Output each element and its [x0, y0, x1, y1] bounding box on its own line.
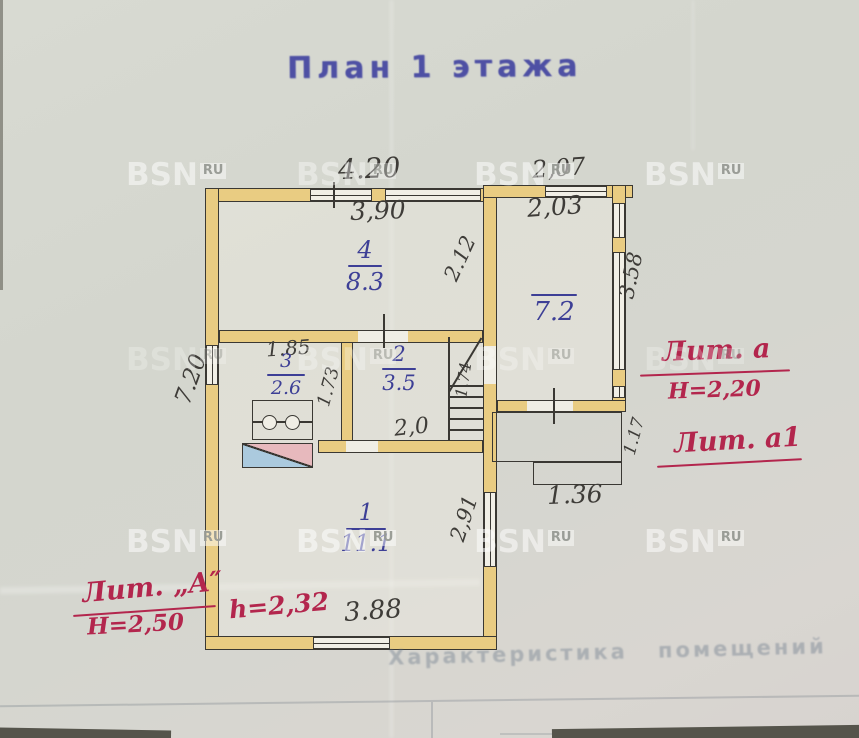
porch-step-1	[492, 412, 622, 462]
watermark: BSNRU	[644, 345, 744, 376]
annotation-liter-porch: Лит. а1	[673, 424, 801, 458]
stove-burner	[285, 415, 300, 430]
watermark: BSNRU	[296, 160, 396, 191]
room-area: 7.2	[533, 297, 574, 327]
watermark: BSNRU	[296, 345, 396, 376]
photo-edge-bottom-right	[552, 725, 859, 738]
dim-main-top-inner: 3,90	[350, 197, 407, 224]
overline	[531, 294, 577, 296]
dim-porch-height: 1.17	[622, 416, 648, 457]
watermark: BSNRU	[126, 345, 226, 376]
annotation-underline	[657, 458, 802, 468]
plan-title: План 1 этажа	[287, 49, 583, 87]
window-room1-bottom	[313, 637, 390, 649]
photo-edge-left	[0, 0, 3, 290]
tick-mark	[553, 388, 555, 424]
bleed-through-line	[0, 695, 859, 707]
bleed-through-line	[431, 702, 433, 738]
stair-step	[448, 418, 483, 420]
annotation-liter-main: Лит. „А″	[81, 568, 223, 607]
tick-mark	[383, 314, 385, 348]
watermark: BSNRU	[126, 527, 226, 558]
paper-crease	[692, 0, 694, 150]
dim-room2-width: 2,0	[393, 415, 430, 441]
room-number: 3	[280, 350, 292, 372]
watermark: BSNRU	[644, 527, 744, 558]
room-number: 1	[359, 500, 374, 526]
dim-room1-width: 3.88	[343, 596, 403, 626]
room-label-veranda: 7.2	[528, 291, 580, 325]
dim-veranda-top-inner: 2,03	[526, 192, 583, 221]
window-veranda-right-1	[613, 203, 625, 238]
wall-interior-room1	[318, 440, 483, 453]
window-veranda-right-3	[613, 386, 625, 398]
stove-body	[242, 443, 313, 468]
stair-step	[448, 429, 483, 431]
stove-burner	[262, 415, 277, 430]
photo-edge-bottom-left	[0, 727, 171, 738]
stair-step	[448, 407, 483, 409]
watermark: BSNRU	[474, 527, 574, 558]
annotation-height-veranda: Н=2,20	[668, 377, 762, 402]
fraction-line	[348, 265, 382, 267]
room-label-4: 4 8.3	[336, 238, 394, 294]
room-number: 4	[357, 236, 372, 264]
watermark: BSNRU	[644, 160, 744, 191]
annotation-height-main: Н=2,50	[86, 610, 184, 638]
door-room2-room1	[346, 440, 378, 453]
dim-porch-width: 1.36	[547, 481, 604, 508]
floor-plan-photo: План 1 этажа	[0, 0, 859, 738]
watermark: BSNRU	[474, 345, 574, 376]
stove-burner-box	[252, 400, 313, 440]
watermark: BSNRU	[126, 160, 226, 191]
door-veranda-porch	[527, 400, 573, 412]
watermark: BSNRU	[296, 527, 396, 558]
room-area: 8.3	[346, 268, 384, 296]
room-area: 2.6	[271, 377, 301, 399]
watermark: BSNRU	[474, 160, 574, 191]
